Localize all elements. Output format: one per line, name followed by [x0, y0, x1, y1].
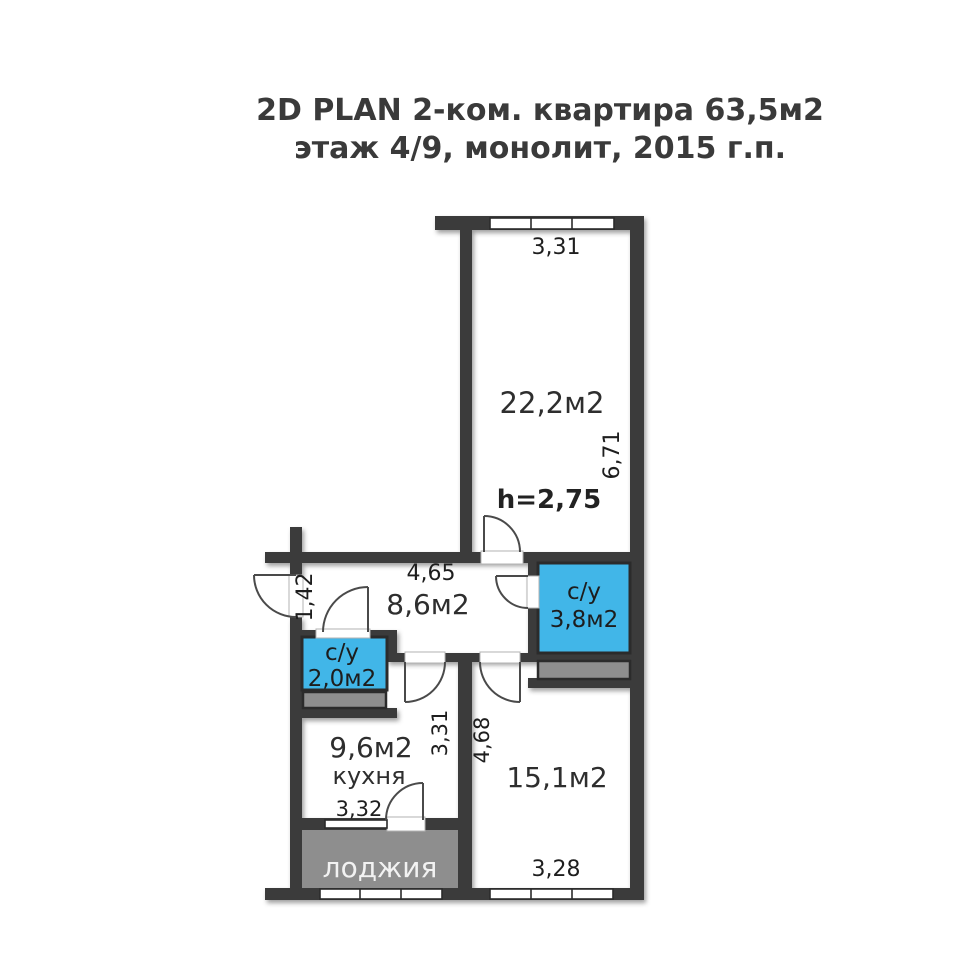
door-bedroom — [480, 662, 520, 702]
wall-below-small-shaft — [290, 708, 397, 718]
label-bath-small-type: с/у — [325, 640, 359, 666]
label-bath-small-area: 2,0м2 — [308, 666, 377, 692]
opening-bedroom-door — [480, 652, 520, 663]
wall-right — [630, 228, 644, 900]
walls — [265, 216, 644, 900]
bathroom-main-shaft — [538, 661, 630, 679]
plan-title-line2: этаж 4/9, монолит, 2015 г.п. — [294, 131, 786, 166]
label-living-area: 22,2м2 — [500, 386, 605, 420]
window-kitchen — [325, 820, 387, 828]
wall-living-left — [460, 228, 472, 552]
dim-hall-width: 4,65 — [407, 561, 456, 586]
dim-living-height: 6,71 — [600, 431, 625, 480]
opening-loggia-door — [387, 817, 425, 831]
label-kitchen-name: кухня — [332, 762, 405, 790]
bathroom-small-shaft — [303, 692, 386, 708]
label-hallway-area: 8,6м2 — [386, 588, 469, 621]
label-bath-main-area: 3,8м2 — [550, 607, 619, 633]
floor-plan-canvas: 2D PLAN 2-ком. квартира 63,5м2 этаж 4/9,… — [0, 0, 960, 960]
dim-bedroom-height: 4,68 — [470, 717, 494, 764]
label-bedroom-area: 15,1м2 — [506, 761, 607, 794]
window-living — [490, 218, 614, 229]
label-bath-main-type: с/у — [567, 579, 601, 605]
door-bath-main — [496, 576, 528, 608]
window-loggia-glazing — [320, 889, 442, 899]
label-ceiling-height: h=2,75 — [497, 485, 601, 515]
label-loggia-name: лоджия — [323, 851, 438, 884]
door-kitchen — [405, 662, 445, 702]
wall-left-below-entry — [290, 617, 302, 892]
opening-bath-main-door — [527, 576, 539, 608]
wall-central-vertical — [458, 653, 472, 893]
floor-plan-page: 2D PLAN 2-ком. квартира 63,5м2 этаж 4/9,… — [0, 0, 960, 960]
door-living — [484, 516, 520, 552]
door-bath-small — [323, 587, 368, 632]
dim-kitchen-height: 3,31 — [428, 710, 452, 757]
opening-bath-small-door — [316, 629, 370, 638]
label-kitchen-area: 9,6м2 — [329, 731, 412, 764]
opening-kitchen-door — [405, 652, 445, 663]
plan-title-line1: 2D PLAN 2-ком. квартира 63,5м2 — [256, 93, 824, 128]
dim-kitchen-width: 3,32 — [336, 797, 383, 821]
opening-living-door — [481, 551, 523, 564]
window-bedroom — [490, 889, 613, 899]
wall-left-stub-top — [290, 527, 302, 557]
dim-bedroom-width: 3,28 — [532, 857, 581, 882]
dim-entry-width: 1,42 — [293, 573, 318, 622]
dim-living-width: 3,31 — [532, 235, 581, 260]
